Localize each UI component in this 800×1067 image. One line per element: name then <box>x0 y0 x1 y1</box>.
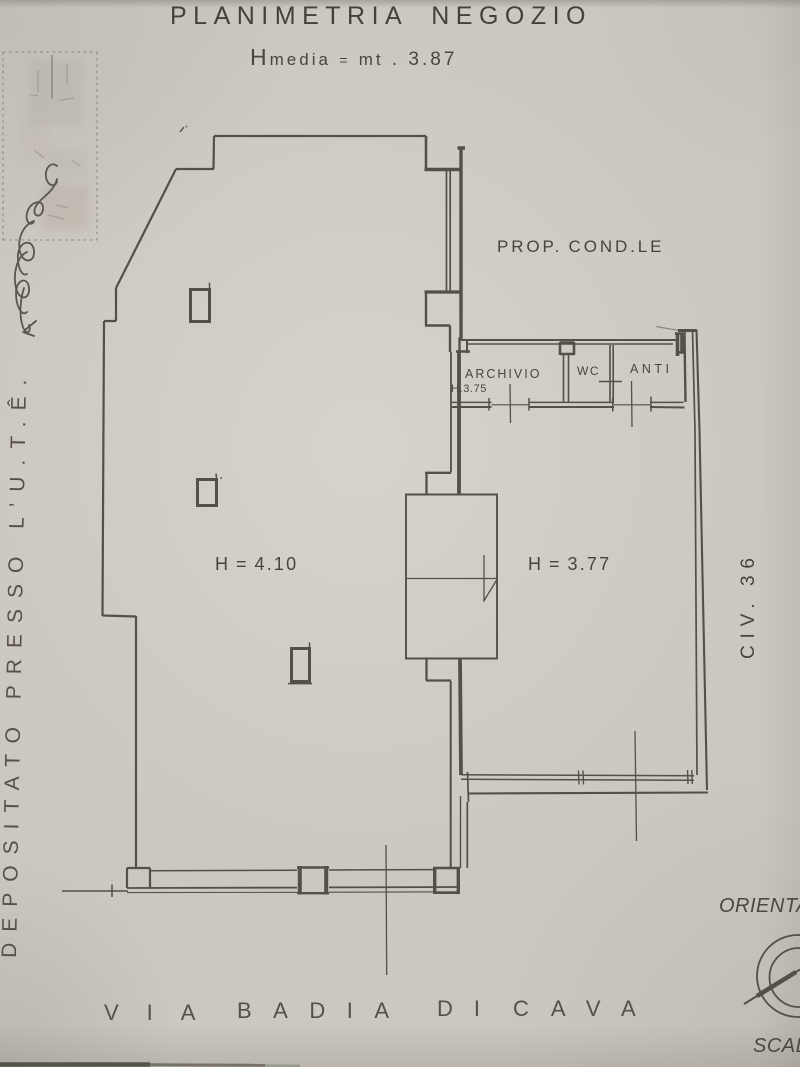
svg-text:H = 4.10: H = 4.10 <box>215 554 298 574</box>
svg-text:ANTI: ANTI <box>630 362 672 376</box>
svg-text:VIA: VIA <box>104 1000 223 1025</box>
svg-text:ORIENTAM: ORIENTAM <box>719 895 800 917</box>
svg-text:CIV. 36: CIV. 36 <box>738 551 759 659</box>
svg-text:SCALA: SCALA <box>753 1035 800 1057</box>
svg-text:DEPOSITATO PRESSO L’U.T.Ê.: DEPOSITATO PRESSO L’U.T.Ê. <box>0 368 31 958</box>
svg-text:Hmedia = mt . 3.87: Hmedia = mt . 3.87 <box>250 44 457 70</box>
svg-text:H.3.75: H.3.75 <box>451 383 487 395</box>
svg-text:DI: DI <box>437 996 501 1021</box>
svg-text:PLANIMETRIA NEGOZIO: PLANIMETRIA NEGOZIO <box>170 2 592 30</box>
svg-text:H = 3.77: H = 3.77 <box>528 554 611 574</box>
svg-text:BADIA: BADIA <box>237 998 411 1023</box>
svg-text:WC: WC <box>577 364 600 378</box>
svg-text:PROP. COND.LE: PROP. COND.LE <box>497 237 664 256</box>
svg-text:CAVA: CAVA <box>513 996 658 1021</box>
svg-text:ARCHIVIO: ARCHIVIO <box>465 367 541 381</box>
